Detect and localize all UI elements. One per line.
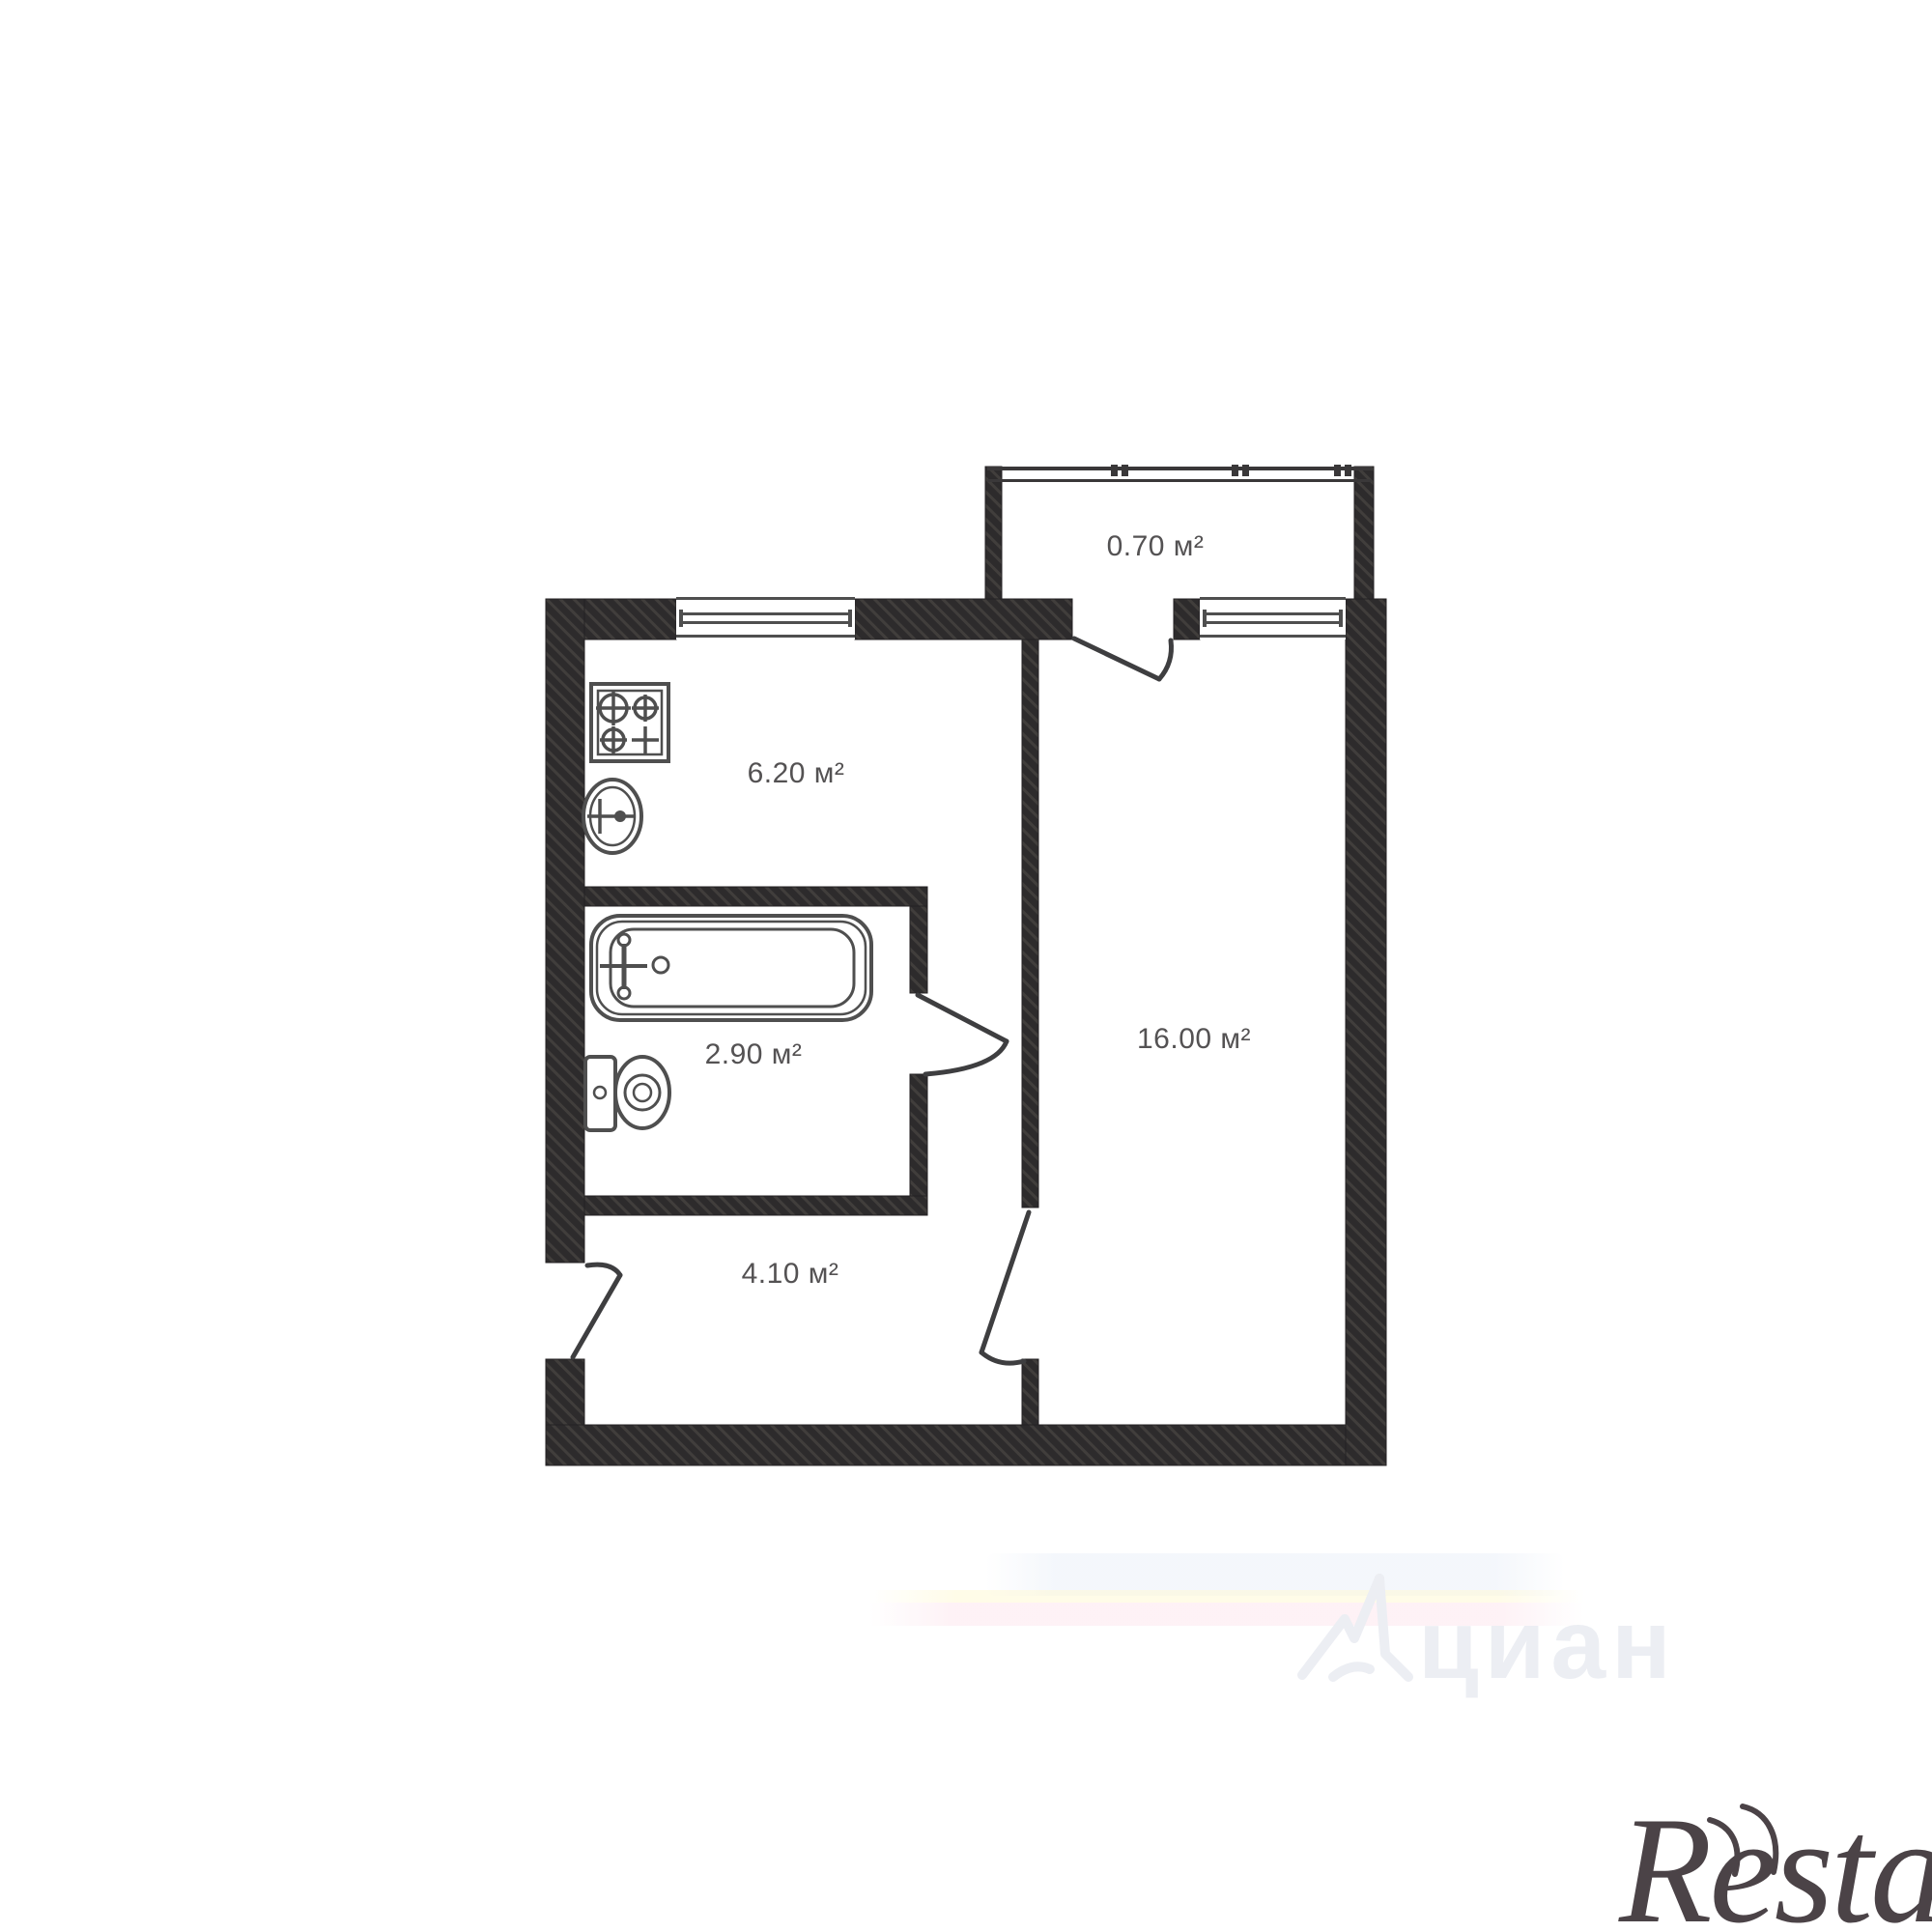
stove-icon: [591, 684, 668, 761]
living-room-window: [1200, 597, 1346, 639]
floor-plan-drawing: [0, 0, 1932, 1932]
wall-right: [1346, 599, 1386, 1465]
wall-balcony-left: [985, 467, 1002, 599]
floor-plan-canvas: 0.70 м² 6.20 м² 2.90 м² 16.00 м² 4.10 м²…: [0, 0, 1932, 1932]
wall-bottom: [546, 1425, 1386, 1465]
wall-partition-upper: [1022, 639, 1038, 1207]
sink-icon: [583, 780, 641, 853]
wall-top-right-of-balcony-door: [1174, 599, 1200, 639]
balcony-door: [1074, 639, 1172, 679]
toilet-icon: [585, 1057, 669, 1130]
wall-left-upper: [546, 599, 584, 1263]
room-label-balcony: 0.70 м²: [1107, 530, 1205, 563]
balcony-window: [987, 465, 1372, 482]
bathroom-door: [918, 995, 1007, 1074]
room-label-kitchen: 6.20 м²: [748, 757, 845, 790]
wall-bathroom-right-upper: [910, 906, 927, 993]
bathtub-icon: [591, 916, 871, 1020]
wall-bathroom-right-lower: [910, 1074, 927, 1215]
wall-balcony-right: [1354, 467, 1374, 599]
wall-bathroom-top: [584, 887, 927, 906]
room-label-bathroom: 2.90 м²: [705, 1038, 803, 1071]
wall-top-mid: [855, 599, 1072, 639]
entrance-door: [573, 1264, 620, 1357]
kitchen-window: [676, 597, 855, 639]
wall-bathroom-bottom: [584, 1196, 927, 1215]
living-room-door: [981, 1212, 1029, 1363]
room-label-living-room: 16.00 м²: [1137, 1023, 1251, 1056]
wall-partition-lower: [1022, 1359, 1038, 1425]
room-label-hallway: 4.10 м²: [742, 1258, 839, 1291]
